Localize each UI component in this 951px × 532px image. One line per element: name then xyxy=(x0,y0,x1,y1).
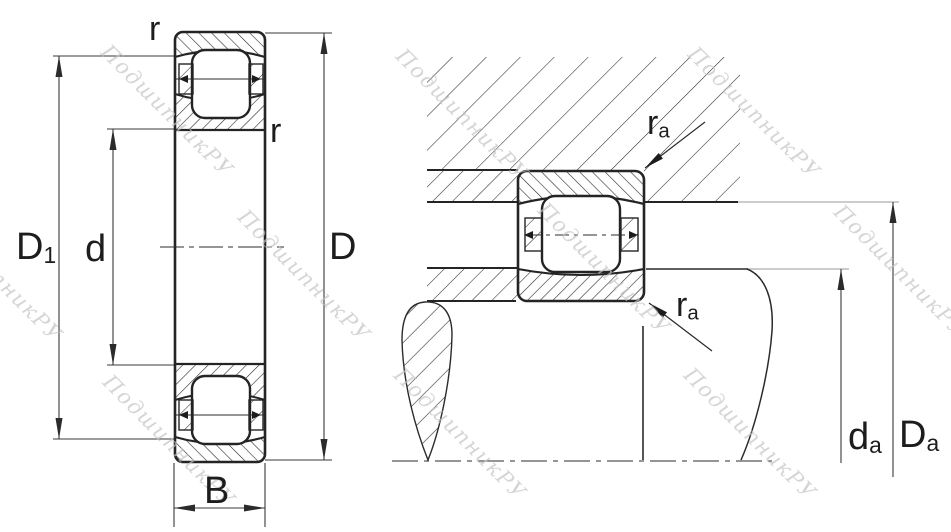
shaft-shoulder-strip xyxy=(427,268,518,301)
label-Da: Da xyxy=(899,416,939,455)
housing-shoulder-strip xyxy=(427,170,518,202)
label-d: d xyxy=(85,230,106,269)
left-view-bearing xyxy=(160,32,284,462)
label-B: B xyxy=(204,472,229,511)
label-ra-bottom: ra xyxy=(676,288,699,324)
shaft-break-section xyxy=(402,302,452,460)
right-view-bearing xyxy=(518,171,644,301)
shaft-shoulder-curve xyxy=(741,269,772,460)
barrel-roller xyxy=(542,196,620,272)
label-D: D xyxy=(329,228,356,267)
label-r-top: r xyxy=(149,12,160,48)
label-ra-top: ra xyxy=(647,106,670,142)
barrel-roller-bottom xyxy=(192,376,250,444)
barrel-roller-top xyxy=(192,50,250,118)
label-r-inner: r xyxy=(270,114,281,150)
bearing-drawing-svg xyxy=(0,0,951,532)
housing-section xyxy=(427,57,740,170)
label-D1: D1 xyxy=(16,228,56,267)
label-da: da xyxy=(848,418,882,457)
bearing-drawing-canvas: ПодшипникРУ ПодшипникРУ ПодшипникРУ Подш… xyxy=(0,0,951,532)
